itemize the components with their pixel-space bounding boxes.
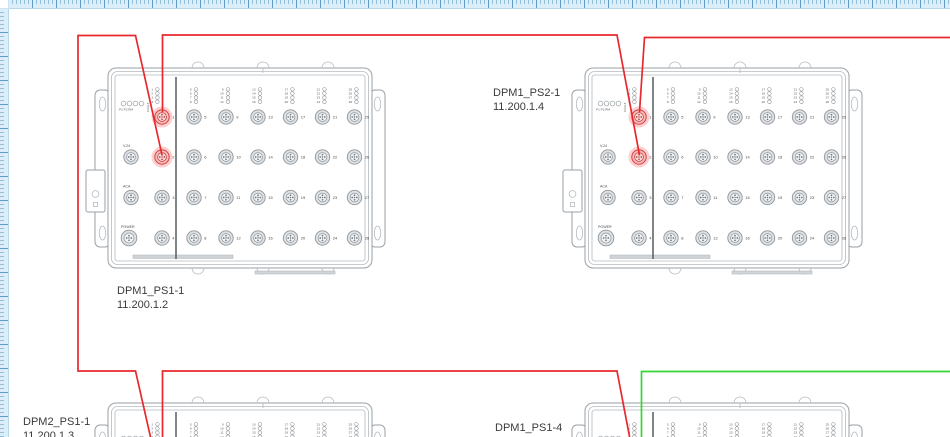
din-rail	[255, 271, 335, 274]
svg-text:FAULT: FAULT	[623, 102, 627, 112]
svg-text:25: 25	[365, 115, 370, 120]
svg-text:10: 10	[713, 155, 718, 160]
din-latch	[86, 170, 105, 212]
device-label-dpm1-ps2-1[interactable]: DPM1_PS2-1 11.200.1.4	[493, 86, 560, 114]
device-label-dpm1-ps1-1[interactable]: DPM1_PS1-1 11.200.1.2	[117, 284, 184, 312]
switch-device-dpm1_ps1_4[interactable]: P1 P2 RMFAULT12341234V.24ACAPOWER5678567…	[560, 395, 866, 437]
svg-text:28: 28	[842, 236, 847, 241]
svg-text:13: 13	[745, 115, 750, 120]
svg-text:16: 16	[252, 100, 256, 104]
svg-text:10: 10	[236, 155, 241, 160]
svg-text:8: 8	[667, 100, 669, 104]
svg-text:19: 19	[301, 195, 306, 200]
svg-text:23: 23	[810, 195, 815, 200]
svg-text:FAULT: FAULT	[146, 102, 150, 112]
svg-text:14: 14	[268, 155, 273, 160]
din-rail	[732, 271, 812, 274]
svg-text:15: 15	[745, 195, 750, 200]
horizontal-ruler	[8, 0, 950, 9]
ruler-corner	[0, 0, 9, 9]
svg-text:24: 24	[794, 100, 798, 104]
switch-device-dpm1_ps1_1[interactable]: P1 P2 RMFAULT12341234V.24ACAPOWER5678567…	[83, 60, 389, 276]
housing	[108, 403, 372, 437]
svg-text:P1 P2 RM: P1 P2 RM	[596, 108, 611, 112]
device-ip: 11.200.1.2	[117, 298, 184, 312]
svg-text:12: 12	[713, 236, 718, 241]
svg-text:28: 28	[349, 100, 353, 104]
svg-text:13: 13	[268, 115, 273, 120]
svg-text:24: 24	[333, 236, 338, 241]
svg-text:28: 28	[365, 236, 370, 241]
svg-text:12: 12	[697, 100, 701, 104]
device-label-dpm1-ps1-4[interactable]: DPM1_PS1-4	[495, 421, 562, 435]
svg-text:V.24: V.24	[600, 144, 607, 148]
device-name: DPM1_PS1-1	[117, 284, 184, 298]
svg-text:16: 16	[745, 236, 750, 241]
svg-text:23: 23	[333, 195, 338, 200]
svg-text:16: 16	[729, 100, 733, 104]
svg-text:27: 27	[842, 195, 847, 200]
diagram-canvas[interactable]: P1 P2 RMFAULT12341234V.24ACAPOWER5678567…	[0, 0, 950, 437]
svg-text:16: 16	[268, 236, 273, 241]
svg-text:25: 25	[842, 115, 847, 120]
svg-text:4: 4	[151, 100, 153, 104]
svg-text:ACA: ACA	[600, 185, 608, 189]
svg-text:8: 8	[190, 100, 192, 104]
switch-device-dpm2_ps1_1[interactable]: P1 P2 RMFAULT12341234V.24ACAPOWER5678567…	[83, 395, 389, 437]
svg-text:ACA: ACA	[123, 185, 131, 189]
vertical-ruler	[0, 8, 9, 437]
svg-text:20: 20	[762, 100, 766, 104]
svg-text:15: 15	[268, 195, 273, 200]
svg-text:22: 22	[333, 155, 338, 160]
device-label-dpm2-ps1-1[interactable]: DPM2_PS1-1 11.200.1.3	[23, 415, 90, 437]
device-name: DPM1_PS2-1	[493, 86, 560, 100]
svg-text:12: 12	[220, 100, 224, 104]
svg-text:26: 26	[842, 155, 847, 160]
device-name: DPM1_PS1-4	[495, 421, 562, 435]
svg-text:27: 27	[365, 195, 370, 200]
svg-text:V.24: V.24	[123, 144, 130, 148]
svg-text:P1 P2 RM: P1 P2 RM	[119, 108, 134, 112]
svg-text:22: 22	[810, 155, 815, 160]
svg-text:17: 17	[301, 115, 306, 120]
power-connector: POWER	[598, 225, 614, 246]
svg-text:POWER: POWER	[121, 225, 135, 229]
svg-text:POWER: POWER	[598, 225, 612, 229]
svg-text:17: 17	[778, 115, 783, 120]
svg-text:12: 12	[236, 236, 241, 241]
svg-text:24: 24	[810, 236, 815, 241]
svg-text:26: 26	[365, 155, 370, 160]
svg-text:18: 18	[778, 155, 783, 160]
power-connector: POWER	[121, 225, 137, 246]
din-latch	[563, 170, 582, 212]
svg-text:19: 19	[778, 195, 783, 200]
svg-text:21: 21	[810, 115, 815, 120]
device-name: DPM2_PS1-1	[23, 415, 90, 429]
svg-text:28: 28	[826, 100, 830, 104]
svg-text:24: 24	[317, 100, 321, 104]
device-ip: 11.200.1.3	[23, 429, 90, 437]
svg-text:18: 18	[301, 155, 306, 160]
svg-text:20: 20	[778, 236, 783, 241]
device-ip: 11.200.1.4	[493, 100, 560, 114]
svg-text:20: 20	[301, 236, 306, 241]
svg-text:14: 14	[745, 155, 750, 160]
svg-text:21: 21	[333, 115, 338, 120]
svg-text:20: 20	[285, 100, 289, 104]
switch-device-dpm1_ps2_1[interactable]: P1 P2 RMFAULT12341234V.24ACAPOWER5678567…	[560, 60, 866, 276]
